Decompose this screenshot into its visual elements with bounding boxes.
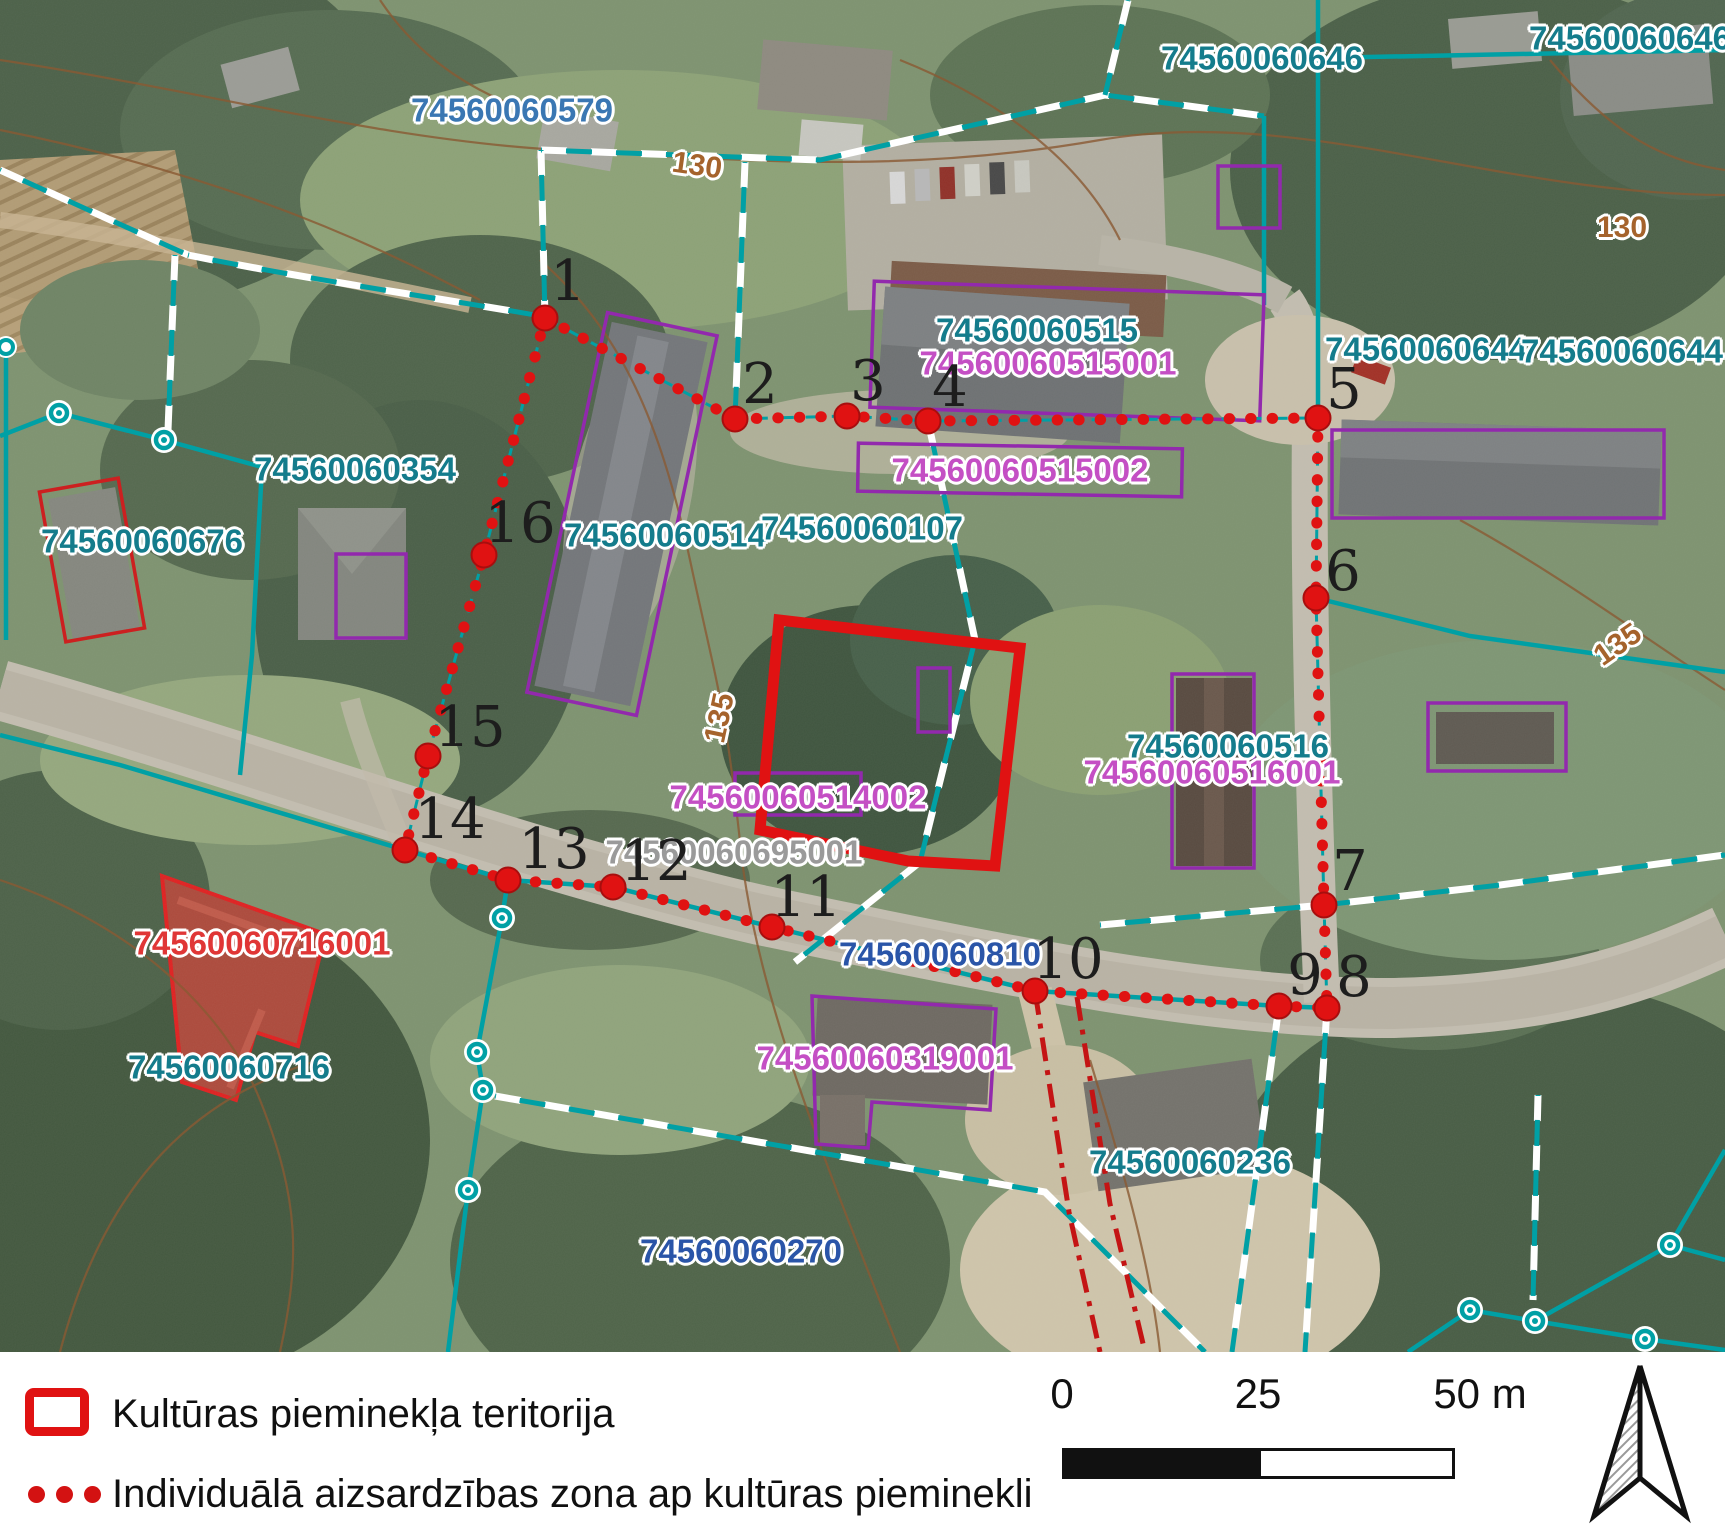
protection-zone-vertex-number: 8	[1336, 950, 1372, 1006]
map-canvas: 7456006057974560060646745600606467456006…	[0, 0, 1725, 1352]
parcel-label: 74560060646	[1161, 42, 1363, 75]
monument-building-label: 74560060716001	[134, 927, 391, 960]
aerial-imagery	[0, 0, 1725, 1352]
scale-tick-0: 0	[1050, 1370, 1073, 1418]
parcel-label: 74560060716	[128, 1051, 330, 1084]
road-parcel-label: 74560060810	[839, 938, 1041, 971]
protection-zone-vertex-number: 16	[484, 496, 555, 552]
parcel-label: 74560060354	[254, 453, 456, 486]
parcel-label: 74560060676	[41, 525, 243, 558]
monument-territory-symbol	[25, 1388, 89, 1436]
protection-zone-vertex-number: 14	[414, 792, 485, 848]
parcel-label: 74560060236	[1089, 1146, 1291, 1179]
road-parcel-label: 74560060270	[640, 1235, 842, 1268]
legend-label-territory: Kultūras pieminekļa teritorija	[112, 1392, 614, 1437]
parcel-label: 74560060579	[411, 94, 613, 127]
scale-tick-25: 25	[1235, 1370, 1282, 1418]
protection-zone-vertex-number: 4	[932, 360, 968, 416]
map-sheet: 7456006057974560060646745600606467456006…	[0, 0, 1725, 1536]
protection-zone-vertex-number: 9	[1287, 948, 1323, 1004]
protection-zone-vertex-number: 10	[1032, 932, 1103, 988]
building-label: 74560060516001	[1084, 756, 1341, 789]
protection-zone-vertex-number: 15	[434, 700, 505, 756]
protection-zone-vertex-number: 13	[518, 822, 589, 878]
protection-zone-vertex-number: 6	[1325, 544, 1361, 600]
contour-label: 130	[670, 148, 724, 185]
north-arrow-icon	[1580, 1358, 1700, 1528]
protection-zone-vertex-number: 12	[620, 834, 691, 890]
protection-zone-symbol	[28, 1486, 101, 1503]
protection-zone-vertex-number: 11	[770, 870, 841, 926]
parcel-label: 74560060515	[936, 314, 1138, 347]
parcel-label: 74560060644	[1521, 335, 1723, 368]
contour-label: 130	[1597, 213, 1647, 243]
parcel-label: 74560060646	[1529, 22, 1725, 55]
protection-zone-vertex-number: 1	[550, 254, 586, 310]
scale-tick-50m: 50 m	[1433, 1370, 1526, 1418]
map-footer: Kultūras pieminekļa teritorija Individuā…	[0, 1352, 1725, 1536]
protection-zone-vertex-number: 3	[850, 354, 886, 410]
protection-zone-vertex-number: 2	[742, 357, 778, 413]
scale-bar-graphic	[1062, 1448, 1455, 1479]
building-label: 74560060515002	[892, 454, 1149, 487]
protection-zone-vertex-number: 5	[1326, 362, 1362, 418]
protection-zone-vertex-number: 7	[1332, 844, 1368, 900]
parcel-label: 74560060514	[564, 519, 766, 552]
building-label: 74560060319001	[757, 1042, 1014, 1075]
legend-label-protection-zone: Individuālā aizsardzības zona ap kultūra…	[112, 1472, 1033, 1517]
building-label: 74560060514002	[670, 781, 927, 814]
parcel-label: 74560060107	[761, 512, 963, 545]
